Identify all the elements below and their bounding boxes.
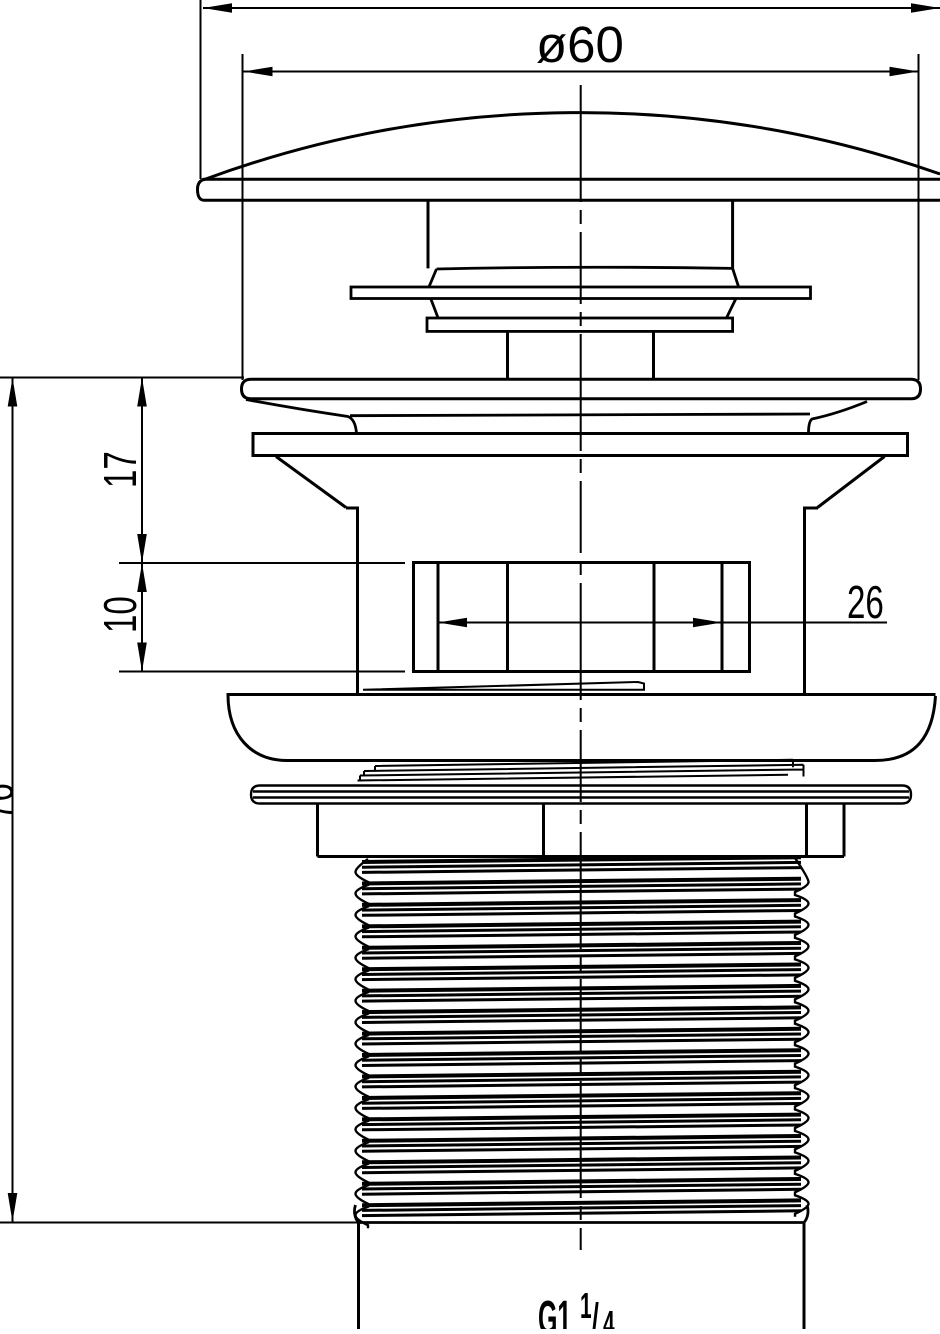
svg-text:10: 10 [96, 596, 146, 633]
svg-text:26: 26 [847, 578, 884, 628]
svg-text:/: / [592, 1296, 599, 1329]
svg-text:1: 1 [580, 1286, 592, 1326]
svg-text:4: 4 [603, 1304, 615, 1329]
svg-text:76: 76 [0, 783, 23, 820]
svg-text:17: 17 [96, 451, 146, 488]
svg-text:G1: G1 [538, 1291, 571, 1329]
svg-text:ø60: ø60 [536, 16, 624, 73]
